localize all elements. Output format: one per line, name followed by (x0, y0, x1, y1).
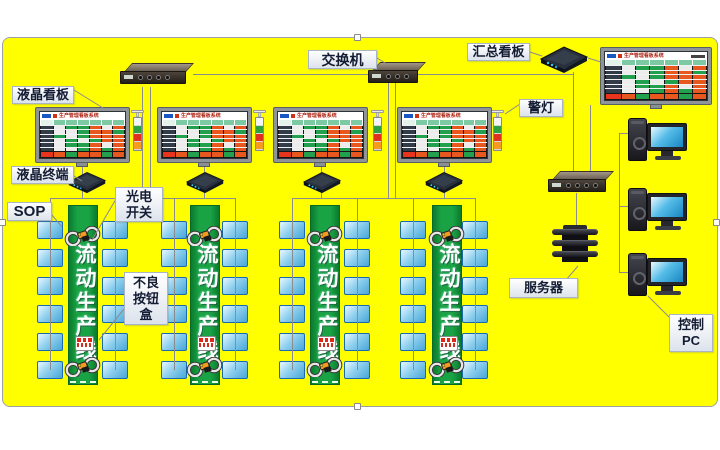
kanban-logo-icon (607, 54, 616, 58)
summary-terminal-icon[interactable] (540, 44, 588, 74)
label-photo-switch[interactable]: 光电 开关 (115, 187, 163, 222)
network-wire (573, 72, 574, 177)
andon-tower-icon[interactable] (253, 110, 266, 155)
andon-tower-icon[interactable] (371, 110, 384, 155)
media-terminal-icon[interactable] (303, 170, 341, 194)
network-wire (413, 198, 414, 370)
summary-kanban-screen[interactable]: 生产管理看板系统 (600, 47, 712, 105)
andon-tower-icon[interactable] (491, 110, 504, 155)
label-sop[interactable]: SOP (7, 202, 52, 221)
label-lcd-terminal[interactable]: 液晶终端 (11, 166, 74, 184)
photo-sensor-icon (306, 226, 344, 246)
label-switch[interactable]: 交换机 (308, 50, 377, 69)
media-terminal-icon[interactable] (425, 170, 463, 194)
server-icon[interactable] (552, 225, 598, 270)
network-wire (292, 198, 476, 199)
line-dash (192, 381, 218, 383)
network-wire (576, 193, 577, 226)
selection-handle-left[interactable] (0, 219, 6, 226)
network-wire (115, 198, 116, 370)
kanban-title: 生产管理看板系统 (624, 54, 664, 58)
defect-button-box-icon (439, 336, 458, 351)
defect-button-box-icon (317, 336, 336, 351)
label-server[interactable]: 服务器 (509, 278, 578, 298)
network-wire (235, 198, 236, 370)
kanban-title: 生产管理看板系统 (297, 114, 337, 118)
kanban-title: 生产管理看板系统 (421, 114, 461, 118)
label-warning-light[interactable]: 警灯 (519, 99, 563, 117)
network-wire (150, 87, 151, 195)
label-lcd-board[interactable]: 液晶看板 (12, 86, 74, 104)
selection-handle-top[interactable] (354, 34, 361, 41)
photo-sensor-icon (186, 357, 224, 377)
selection-handle-right[interactable] (713, 219, 720, 226)
andon-tower-icon[interactable] (131, 110, 144, 155)
photo-sensor-icon (64, 226, 102, 246)
defect-button-box-icon (75, 336, 94, 351)
label-summary-board[interactable]: 汇总看板 (467, 43, 530, 61)
kanban-logo-icon (404, 114, 413, 118)
media-terminal-icon[interactable] (186, 170, 224, 194)
line-dash (70, 381, 96, 383)
kanban-logo-icon (42, 114, 51, 118)
network-wire (388, 83, 389, 198)
line-dash (434, 381, 460, 383)
network-wire (590, 105, 591, 177)
line-dash (312, 381, 338, 383)
kanban-logo-icon (164, 114, 173, 118)
photo-sensor-icon (186, 226, 224, 246)
network-wire (619, 133, 620, 273)
label-control-pc[interactable]: 控制 PC (669, 314, 713, 352)
control-pc-icon[interactable] (625, 247, 687, 299)
selection-handle-bottom[interactable] (354, 403, 361, 410)
network-wire (475, 198, 476, 370)
production-line-3[interactable]: 流动生产线 (310, 205, 340, 385)
control-pc-icon[interactable] (625, 182, 687, 234)
network-wire (395, 83, 396, 198)
photo-sensor-icon (428, 357, 466, 377)
label-defect-button-box[interactable]: 不良 按钮 盒 (124, 272, 168, 325)
lcd-kanban-screen-2[interactable]: 生产管理看板系统 (157, 107, 252, 163)
production-line-4[interactable]: 流动生产线 (432, 205, 462, 385)
network-wire (174, 198, 175, 370)
network-wire (292, 198, 293, 370)
network-switch-icon[interactable] (120, 63, 186, 87)
kanban-title: 生产管理看板系统 (181, 114, 221, 118)
lcd-kanban-screen-3[interactable]: 生产管理看板系统 (273, 107, 368, 163)
network-wire (50, 198, 51, 370)
network-switch-icon[interactable] (548, 171, 606, 193)
kanban-title: 生产管理看板系统 (59, 114, 99, 118)
lcd-kanban-screen-4[interactable]: 生产管理看板系统 (397, 107, 492, 163)
production-line-2[interactable]: 流动生产线 (190, 205, 220, 385)
lcd-kanban-screen-1[interactable]: 生产管理看板系统 (35, 107, 130, 163)
control-pc-icon[interactable] (625, 112, 687, 164)
photo-sensor-icon (64, 357, 102, 377)
defect-button-box-icon (197, 336, 216, 351)
production-line-1[interactable]: 流动生产线 (68, 205, 98, 385)
photo-sensor-icon (428, 226, 466, 246)
photo-sensor-icon (306, 357, 344, 377)
diagram-page: { "canvas": { "background": "#ffff00", "… (0, 0, 720, 450)
kanban-logo-icon (280, 114, 289, 118)
network-wire (357, 198, 358, 370)
